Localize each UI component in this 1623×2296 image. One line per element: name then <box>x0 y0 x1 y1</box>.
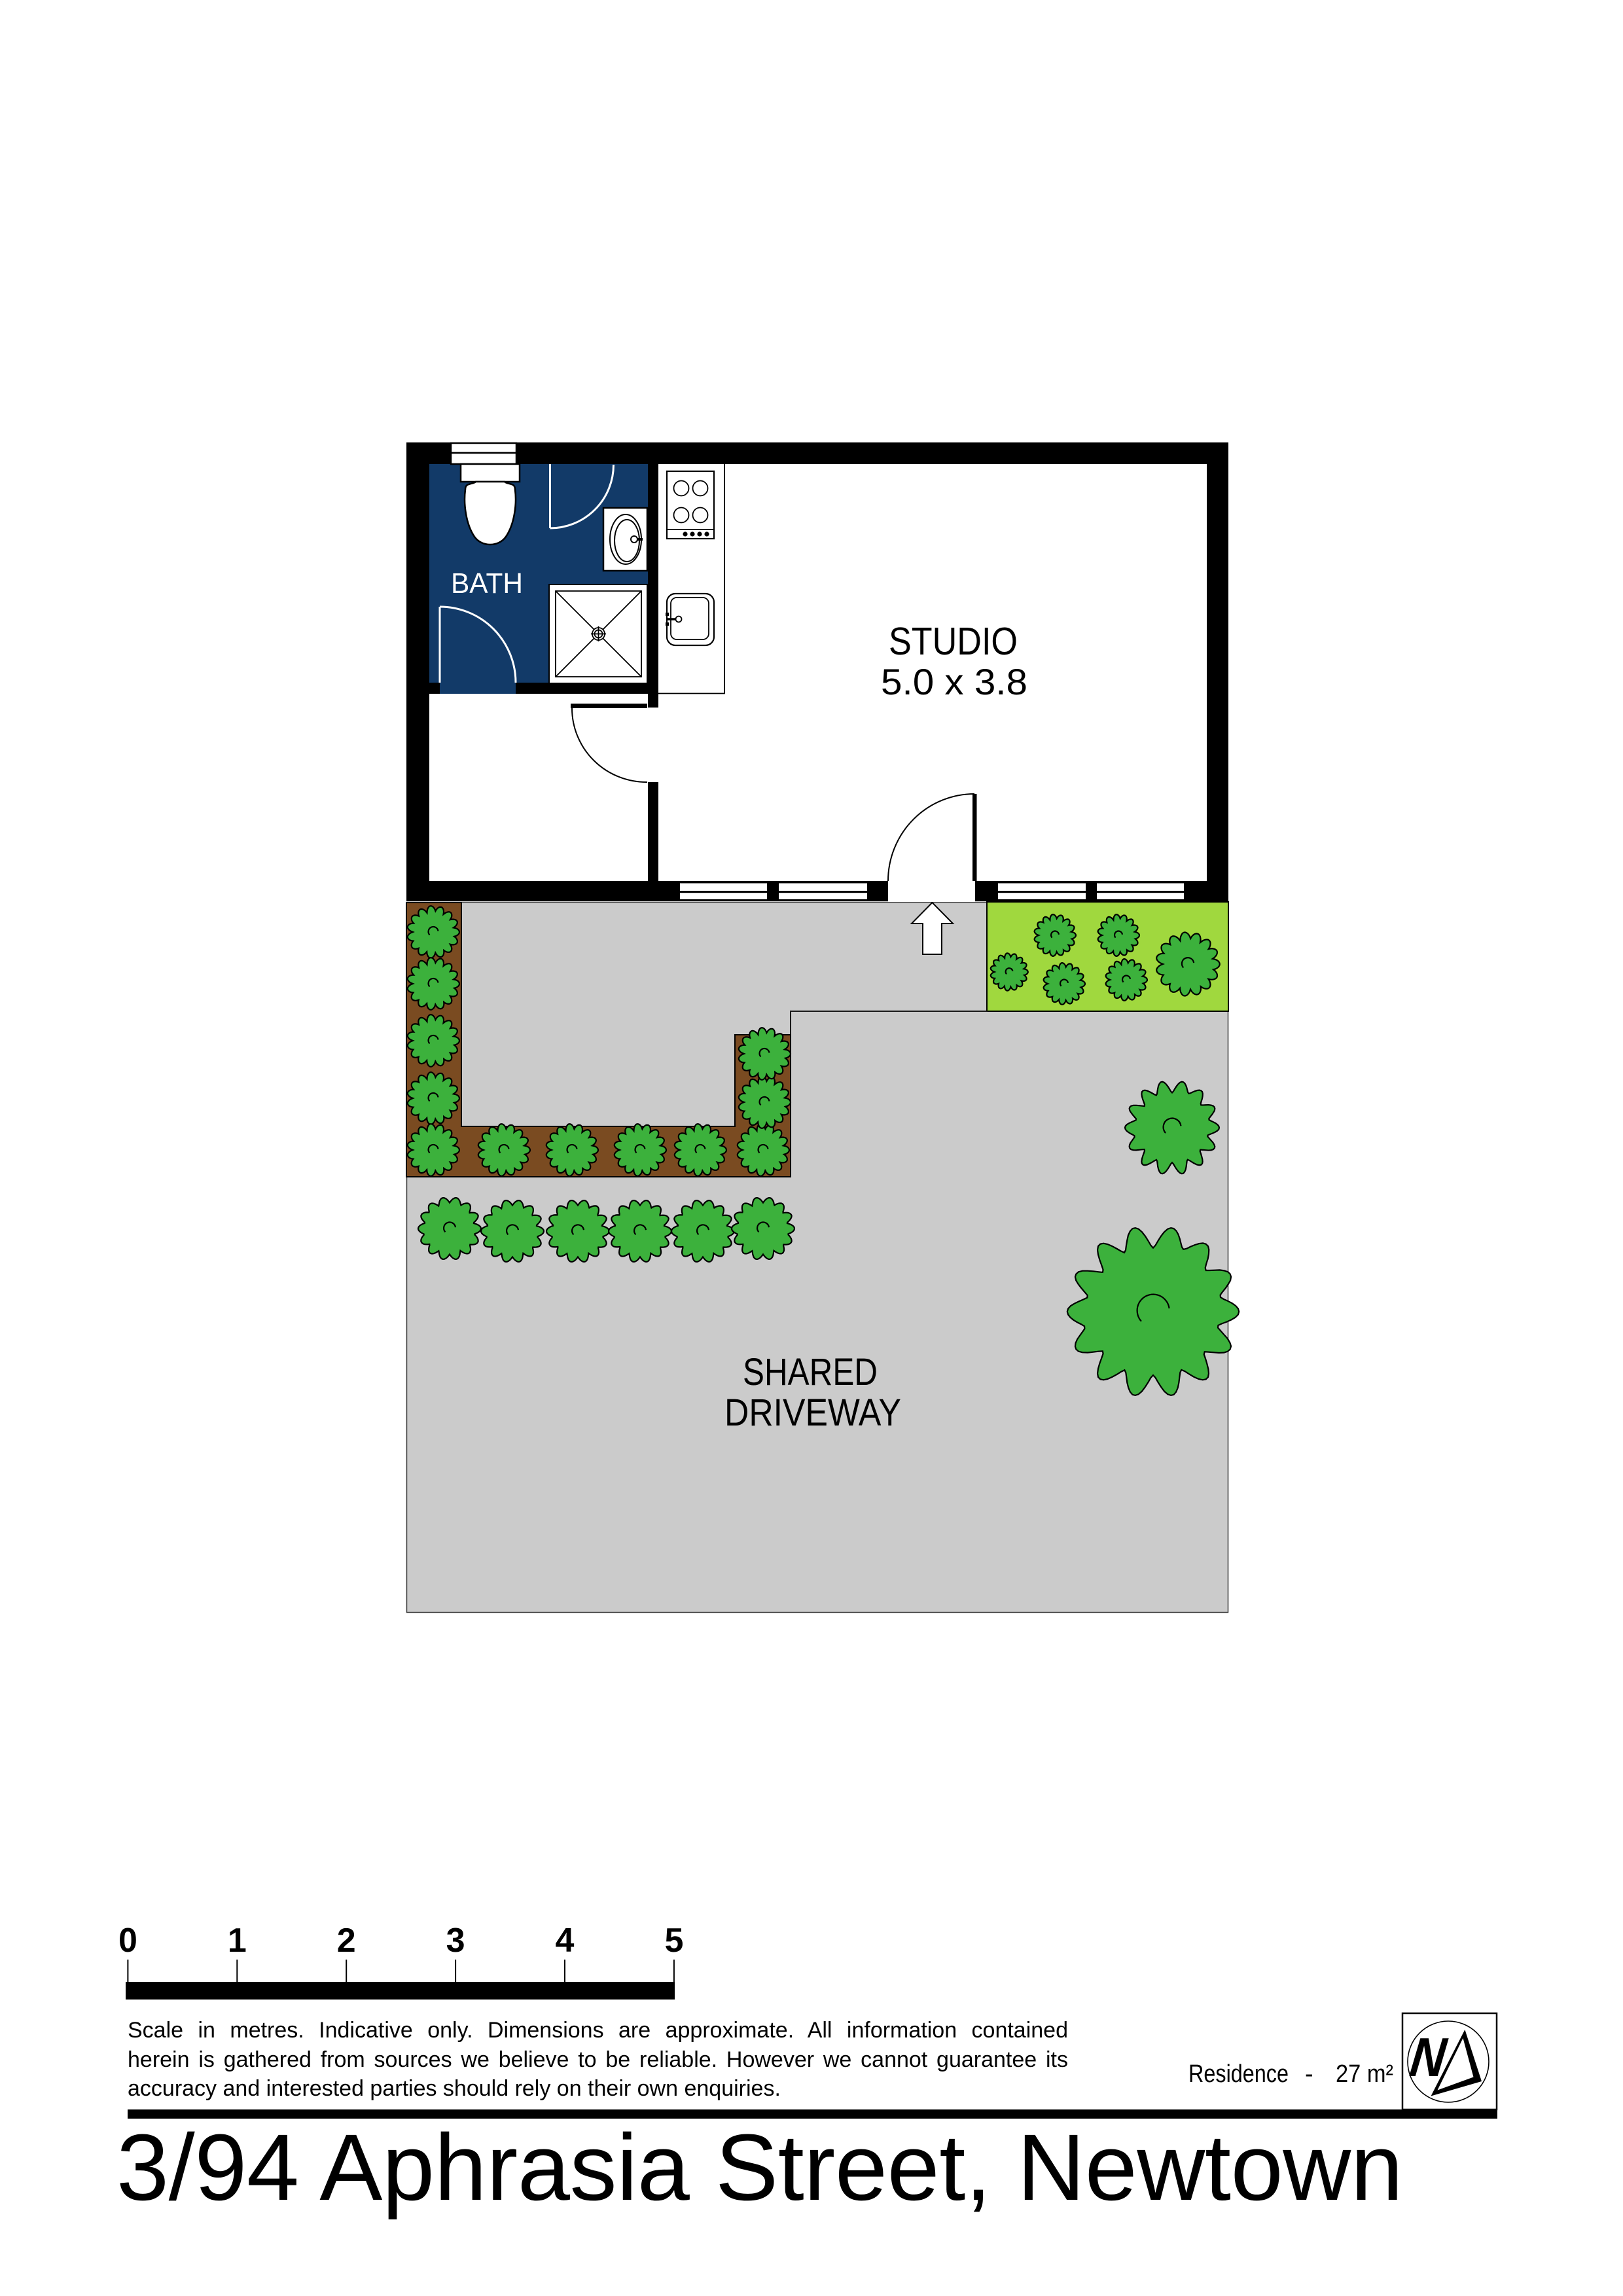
svg-text:5: 5 <box>664 1922 683 1960</box>
svg-text:1: 1 <box>228 1922 247 1960</box>
svg-text:4: 4 <box>556 1922 575 1960</box>
svg-text:BATH: BATH <box>451 568 523 600</box>
svg-text:Residence: Residence <box>1188 2060 1289 2088</box>
svg-text:STUDIO: STUDIO <box>889 620 1018 663</box>
svg-text:SHARED: SHARED <box>743 1351 878 1393</box>
svg-text:3: 3 <box>446 1922 465 1960</box>
svg-text:DRIVEWAY: DRIVEWAY <box>724 1391 901 1434</box>
svg-text:2: 2 <box>337 1922 356 1960</box>
svg-text:-: - <box>1305 2060 1313 2088</box>
svg-text:0: 0 <box>118 1922 137 1960</box>
svg-text:27 m²: 27 m² <box>1336 2060 1393 2088</box>
svg-text:5.0 x 3.8: 5.0 x 3.8 <box>881 661 1027 702</box>
